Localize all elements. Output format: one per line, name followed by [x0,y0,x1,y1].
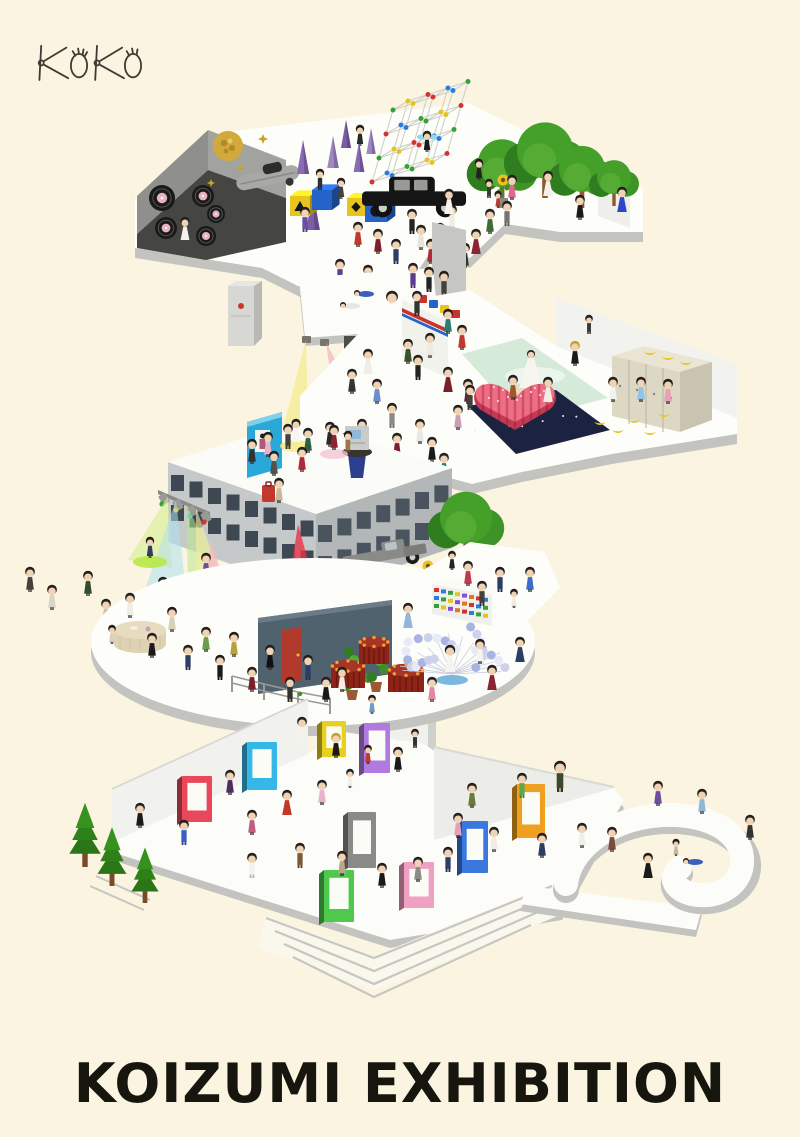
fridge [228,281,262,346]
logo-k2-arms [100,48,124,79]
picture-frame [343,812,376,871]
poster-background: KOIZUMI EXHIBITION [0,0,800,1137]
exhibition-title: KOIZUMI EXHIBITION [0,1052,800,1115]
hook [566,815,748,901]
logo-o1-lashes [73,49,87,57]
spotlight-performer [47,585,57,610]
exhibition-illustration [0,0,800,1137]
picture-frame [359,723,390,776]
spotlight-performer [83,571,93,596]
picture-frame [319,870,354,925]
pool [133,556,167,568]
picture-frame [177,776,212,825]
logo-o2 [125,54,141,77]
logo-k2-stem [95,46,97,80]
hook-visitor [643,853,653,878]
pool [320,449,348,459]
disco [213,131,243,161]
picture-frame [317,721,346,760]
hook-visitor [745,815,755,840]
lie [683,858,703,865]
pillar [432,222,466,302]
logo-k1-arms [44,48,68,79]
hook-visitor [653,781,663,806]
hook-visitor [697,789,707,814]
picture-frame [242,742,277,793]
table [114,621,166,653]
picture-frame [512,784,545,841]
spotlight-performer [25,567,35,592]
picture-frame [457,821,488,876]
lockers [612,346,712,432]
hook-visitor [672,839,679,856]
logo-k1-stem [39,46,41,80]
koko-logo [34,38,142,86]
